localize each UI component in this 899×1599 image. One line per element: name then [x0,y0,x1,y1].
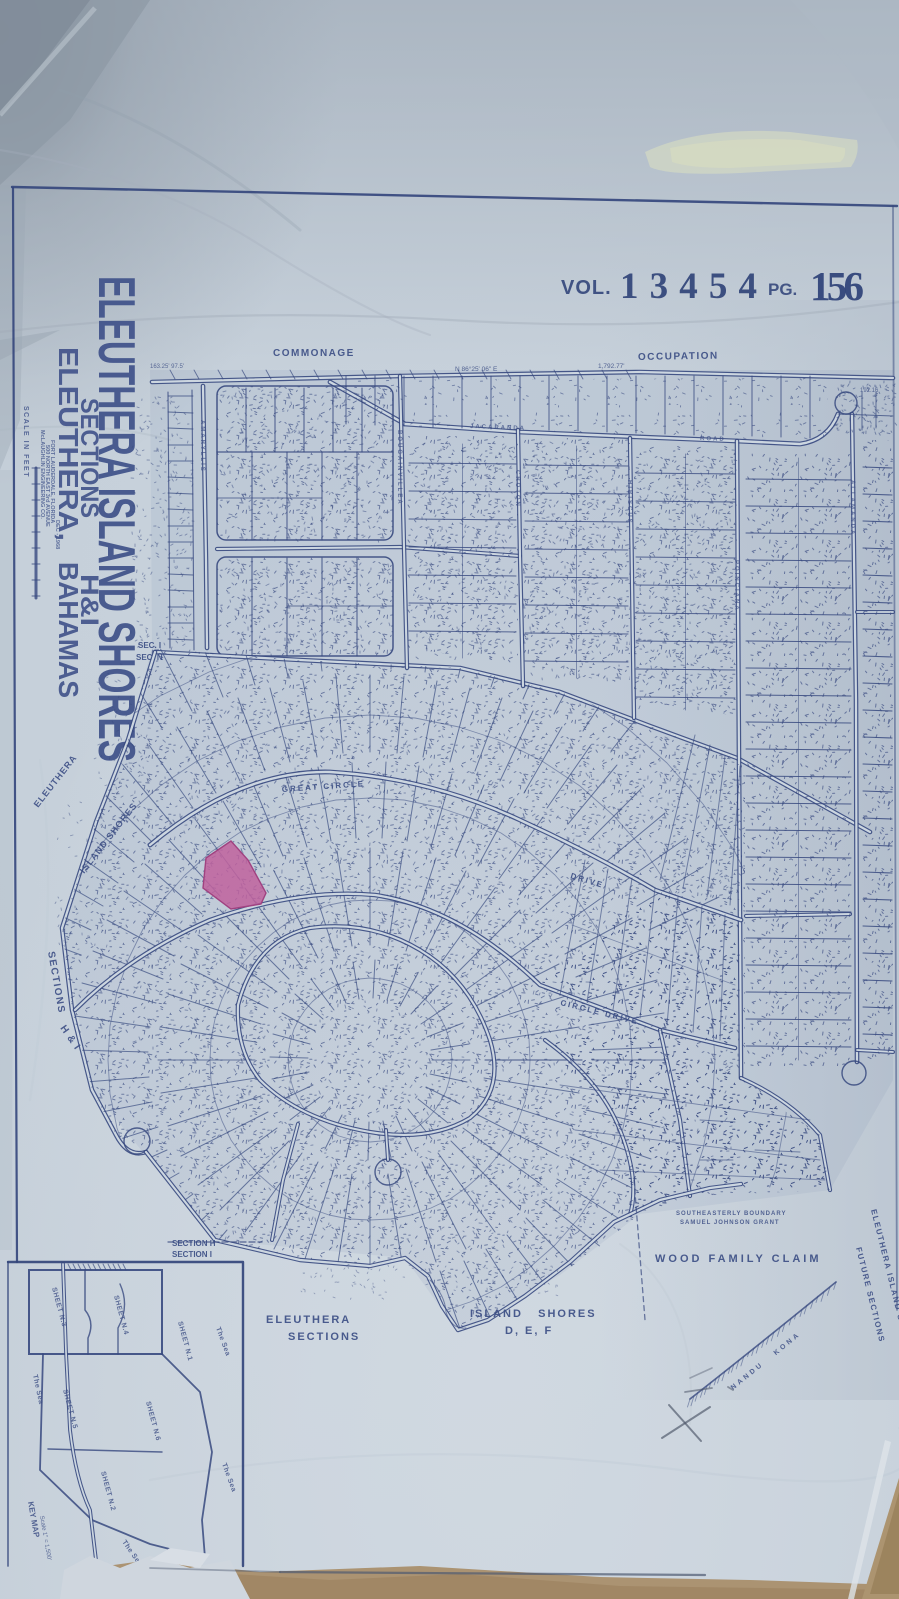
svg-text:AMARYLLIS: AMARYLLIS [199,420,205,473]
svg-text:FORT LAUDERDALE, FLORIDA: FORT LAUDERDALE, FLORIDA [49,440,55,523]
svg-text:OCCUPATION: OCCUPATION [638,351,719,363]
svg-text:1,792.77': 1,792.77' [598,363,625,370]
svg-text:DEC - 1968: DEC - 1968 [54,520,60,549]
svg-text:SECTION I: SECTION I [172,1250,212,1259]
svg-text:SECTIONS: SECTIONS [288,1331,360,1343]
svg-text:ELEUTHERA,: ELEUTHERA, [53,347,84,541]
svg-text:ISLAND SHORES: ISLAND SHORES [470,1308,597,1320]
svg-text:BAHAMAS: BAHAMAS [53,562,84,698]
svg-text:BOUGAINVILLEA: BOUGAINVILLEA [396,430,402,506]
svg-text:N 86°25' 06" E: N 86°25' 06" E [455,365,498,373]
svg-text:ELEUTHERA ISLAND SHORES: ELEUTHERA ISLAND SHORES [87,276,145,762]
svg-text:ELEUTHERA: ELEUTHERA [266,1314,351,1326]
svg-text:SECTION H: SECTION H [172,1239,216,1248]
svg-text:COMMONAGE: COMMONAGE [273,348,355,359]
svg-text:156: 156 [810,263,866,309]
svg-text:VOL.: VOL. [561,277,612,299]
svg-text:PG.: PG. [768,280,797,299]
svg-text:WOOD FAMILY CLAIM: WOOD FAMILY CLAIM [655,1253,822,1265]
svg-text:SCALE IN FEET: SCALE IN FEET [22,406,29,478]
svg-text:D, E, F: D, E, F [505,1325,553,1337]
svg-text:13454: 13454 [620,266,762,307]
svg-text:SOUTHEASTERLY BOUNDARY: SOUTHEASTERLY BOUNDARY [676,1211,786,1217]
svg-text:SAMUEL JOHNSON GRANT: SAMUEL JOHNSON GRANT [680,1220,780,1226]
svg-text:163.25' 97.5': 163.25' 97.5' [150,364,184,370]
